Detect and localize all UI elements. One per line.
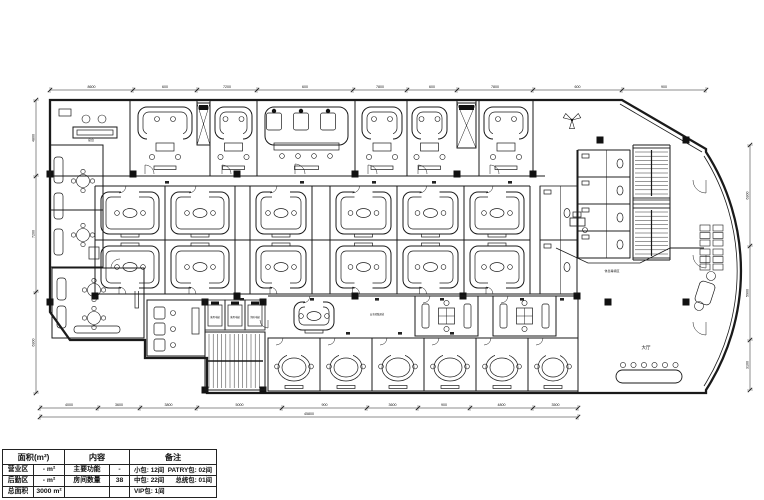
room-wc xyxy=(578,204,630,231)
room-smallroom xyxy=(528,338,578,391)
room-uroom xyxy=(362,107,402,170)
room-midroom xyxy=(171,243,229,294)
legend-header-area: 面积(m²) xyxy=(3,450,65,465)
room-smallroom xyxy=(476,338,528,391)
floor-plan-canvas: 8600600720060078006007800600900400036003… xyxy=(0,0,764,500)
svg-text:客用电梯: 客用电梯 xyxy=(210,315,220,319)
svg-text:3800: 3800 xyxy=(165,403,173,407)
room-seats xyxy=(700,225,723,246)
room-fan xyxy=(563,114,580,129)
svg-text:大厅: 大厅 xyxy=(642,344,651,351)
area-value: - m² xyxy=(34,465,65,476)
svg-text:7200: 7200 xyxy=(223,85,231,89)
room-chaise xyxy=(694,272,716,311)
svg-text:5000: 5000 xyxy=(236,403,244,407)
room-elevrow xyxy=(205,300,265,330)
svg-text:消防电梯: 消防电梯 xyxy=(250,315,260,319)
area-label: 后勤区 xyxy=(3,476,34,487)
svg-text:600: 600 xyxy=(302,85,308,89)
room-loungeH xyxy=(52,268,144,338)
content-value xyxy=(110,487,130,498)
room-wc xyxy=(578,150,630,177)
svg-text:3600: 3600 xyxy=(389,403,397,407)
room-seats xyxy=(700,249,723,270)
remark-cell: 小包: 12间 PATRY包: 02间 xyxy=(130,465,217,476)
room-wc xyxy=(578,177,630,204)
room-smallroom xyxy=(424,338,476,391)
area-label: 总面积 xyxy=(3,487,34,498)
room-midroom xyxy=(470,186,524,237)
content-value: 38 xyxy=(110,476,130,487)
room-party2 xyxy=(493,296,556,336)
svg-text:安全疏散通道: 安全疏散通道 xyxy=(370,312,385,316)
room-party xyxy=(265,107,348,170)
content-label: 房间数量 xyxy=(65,476,110,487)
remark-left: 中包: 22间 xyxy=(134,477,164,484)
content-label: 主要功能 xyxy=(65,465,110,476)
columns-layer xyxy=(47,137,690,394)
svg-text:7800: 7800 xyxy=(376,85,384,89)
remark-left: VIP包: 1间 xyxy=(134,488,165,495)
legend-row-2: 后勤区 - m² 房间数量 38 中包: 22间 总统包: 01间 xyxy=(3,476,217,487)
svg-text:900: 900 xyxy=(322,403,328,407)
svg-text:6300: 6300 xyxy=(746,192,750,200)
room-stairH xyxy=(633,148,670,198)
svg-text:5900: 5900 xyxy=(746,289,750,297)
room-midroom xyxy=(403,243,458,294)
area-label: 营业区 xyxy=(3,465,34,476)
area-value: - m² xyxy=(34,476,65,487)
room-midroom xyxy=(336,243,391,294)
svg-text:8600: 8600 xyxy=(88,85,96,89)
room-shaft xyxy=(457,103,476,148)
svg-text:客用电梯: 客用电梯 xyxy=(230,315,240,319)
room-ovaltable xyxy=(616,362,682,383)
legend-row-1: 营业区 - m² 主要功能 - 小包: 12间 PATRY包: 02间 xyxy=(3,465,217,476)
legend-table: 面积(m²) 内容 备注 营业区 - m² 主要功能 - 小包: 12间 PAT… xyxy=(2,449,217,498)
remark-cell: VIP包: 1间 xyxy=(130,487,217,498)
room-midroom xyxy=(101,186,159,237)
svg-text:3100: 3100 xyxy=(746,361,750,369)
room-uroom xyxy=(215,107,252,170)
svg-text:4800: 4800 xyxy=(498,403,506,407)
svg-text:600: 600 xyxy=(575,85,581,89)
room-smallroom xyxy=(372,338,424,391)
room-midroom xyxy=(403,186,458,237)
room-smallroom xyxy=(320,338,372,391)
svg-text:6300: 6300 xyxy=(32,339,36,347)
room-wc xyxy=(540,240,577,294)
svg-text:7200: 7200 xyxy=(32,230,36,238)
remark-right: 总统包: 01间 xyxy=(175,477,212,484)
svg-text:4800: 4800 xyxy=(32,134,36,142)
remark-right: PATRY包: 02间 xyxy=(168,467,212,474)
room-midroom xyxy=(336,186,391,237)
room-stairV xyxy=(205,332,265,390)
svg-text:600: 600 xyxy=(429,85,435,89)
room-midroom xyxy=(256,186,306,237)
legend-header-row: 面积(m²) 内容 备注 xyxy=(3,450,217,465)
room-midroom xyxy=(470,243,524,294)
legend-header-content: 内容 xyxy=(65,450,130,465)
svg-text:3600: 3600 xyxy=(115,403,123,407)
room-uroom xyxy=(412,107,447,170)
svg-text:900: 900 xyxy=(661,85,667,89)
room-office xyxy=(59,109,117,138)
room-midroom xyxy=(256,243,306,294)
rooms-layer xyxy=(50,103,723,391)
room-party2 xyxy=(415,296,478,336)
room-midroom xyxy=(294,296,334,333)
remark-left: 小包: 12间 xyxy=(134,467,164,474)
room-wc xyxy=(540,186,577,240)
legend-header-remark: 备注 xyxy=(130,450,217,465)
room-smallroom xyxy=(268,338,320,391)
svg-text:45800: 45800 xyxy=(304,412,314,416)
svg-text:7800: 7800 xyxy=(491,85,499,89)
room-wc xyxy=(578,231,630,258)
room-uroom xyxy=(138,107,192,170)
legend-row-3: 总面积 3000 m² VIP包: 1间 xyxy=(3,487,217,498)
room-threesofa xyxy=(147,300,205,356)
svg-text:600: 600 xyxy=(162,85,168,89)
svg-text:900: 900 xyxy=(441,403,447,407)
plan-labels: 总台客用电梯客用电梯消防电梯休息等候区安全疏散通道大厅 xyxy=(88,137,651,351)
room-desk xyxy=(570,212,588,233)
svg-text:3500: 3500 xyxy=(552,403,560,407)
room-shaft xyxy=(197,103,210,145)
svg-text:总台: 总台 xyxy=(88,137,94,142)
content-label xyxy=(65,487,110,498)
room-uroom xyxy=(484,107,528,170)
svg-text:休息等候区: 休息等候区 xyxy=(604,268,619,273)
remark-cell: 中包: 22间 总统包: 01间 xyxy=(130,476,217,487)
area-value: 3000 m² xyxy=(34,487,65,498)
content-value: - xyxy=(110,465,130,476)
svg-text:4000: 4000 xyxy=(65,403,73,407)
room-midroom xyxy=(171,186,229,237)
